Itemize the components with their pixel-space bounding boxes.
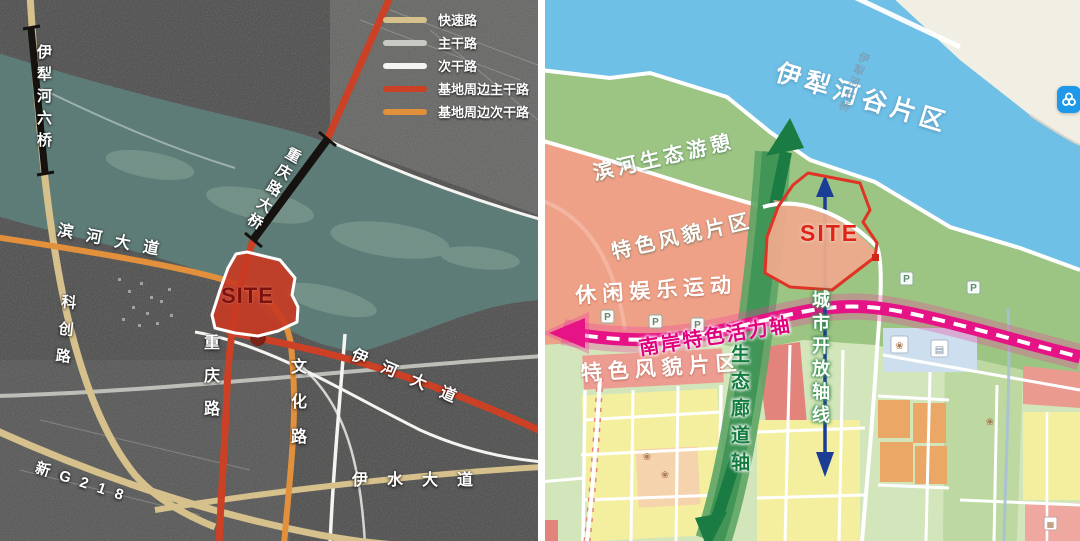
label-leisure-line1: 休闲娱乐运动 <box>575 272 738 309</box>
flower-icon: ❀ <box>643 452 651 463</box>
label-riverfront-line1: 滨河生态游憩 <box>591 129 737 188</box>
legend-label: 次干路 <box>438 56 477 75</box>
site-corner-marker <box>872 254 879 261</box>
legend-swatch-main-road <box>383 40 427 46</box>
garden-icon-glyph: ❀ <box>895 341 903 352</box>
parking-icon: P <box>900 272 913 285</box>
panel-divider <box>538 0 545 541</box>
svg-text:P: P <box>970 283 977 294</box>
legend-row: 主干路 <box>383 35 529 50</box>
label-wenhua-road: 文化路 <box>284 358 308 463</box>
temple-icon-glyph: ▦ <box>1047 520 1055 529</box>
flower-icon: ❀ <box>986 417 994 428</box>
map-app-share-button[interactable] <box>1057 86 1080 113</box>
legend-swatch-expressway <box>383 17 427 23</box>
legend-row: 快速路 <box>383 12 529 27</box>
road-legend: 快速路 主干路 次干路 基地周边主干路 基地周边次干路 <box>383 12 529 127</box>
svg-text:P: P <box>903 274 910 285</box>
label-yishui-avenue: 伊水大道 <box>352 466 492 490</box>
site-label-left: SITE <box>221 283 274 309</box>
legend-label: 快速路 <box>438 10 477 29</box>
share-circles-icon <box>1057 86 1080 113</box>
legend-row: 基地周边主干路 <box>383 81 529 96</box>
legend-row: 次干路 <box>383 58 529 73</box>
gallery-icon-glyph: ▤ <box>935 345 944 356</box>
planning-structure-panel: P P P P P ❀ ▤ ❀ <box>545 0 1080 541</box>
parking-icon: P <box>967 281 980 294</box>
stream-green-strip <box>943 352 1023 541</box>
legend-label: 主干路 <box>438 33 477 52</box>
flower-icon: ❀ <box>661 470 669 481</box>
label-city-open-axis: 城市开放轴线 <box>807 290 833 428</box>
label-yili-bridge6: 伊犁河六桥 <box>33 44 54 154</box>
legend-row: 基地周边次干路 <box>383 104 529 119</box>
site-label-right: SITE <box>800 220 859 247</box>
legend-label: 基地周边次干路 <box>438 102 529 121</box>
label-eco-corridor-axis: 生态廊道轴 <box>725 344 752 479</box>
legend-label: 基地周边主干路 <box>438 79 529 98</box>
legend-swatch-site-main-road <box>383 86 427 92</box>
legend-swatch-site-secondary-road <box>383 109 427 115</box>
legend-swatch-secondary-road <box>383 63 427 69</box>
satellite-road-panel: 快速路 主干路 次干路 基地周边主干路 基地周边次干路 伊犁河六桥 滨河大道 科… <box>0 0 538 541</box>
label-chongqing-road: 重庆路 <box>197 334 221 433</box>
planning-map-figure: 快速路 主干路 次干路 基地周边主干路 基地周边次干路 伊犁河六桥 滨河大道 科… <box>0 0 1080 541</box>
